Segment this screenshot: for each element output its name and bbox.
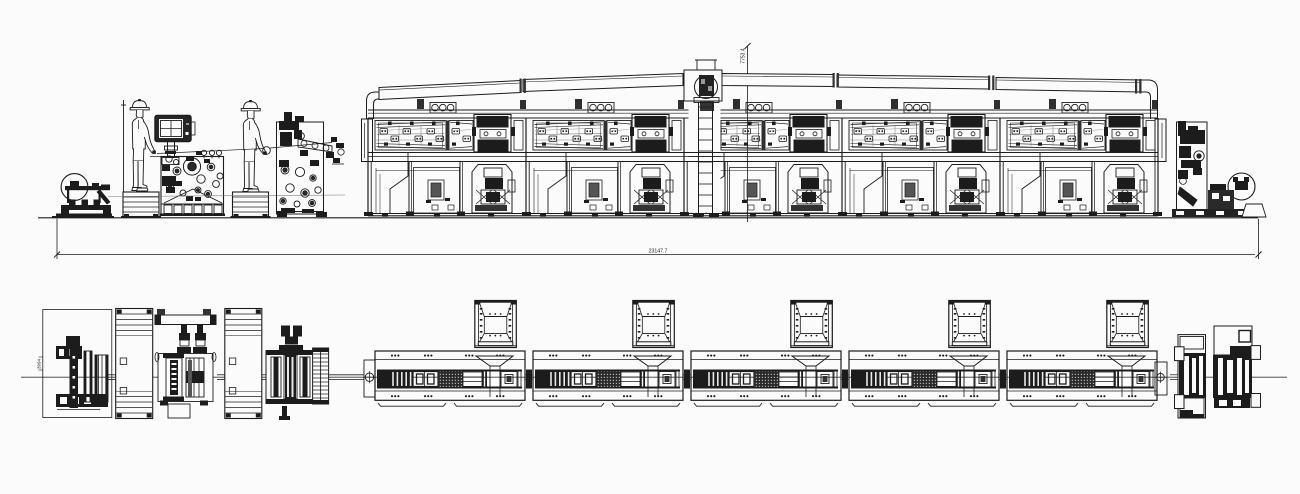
svg-text:3994: 3994 [37,358,42,369]
svg-text:7753.4: 7753.4 [741,48,747,64]
svg-text:23147.7: 23147.7 [649,249,668,255]
